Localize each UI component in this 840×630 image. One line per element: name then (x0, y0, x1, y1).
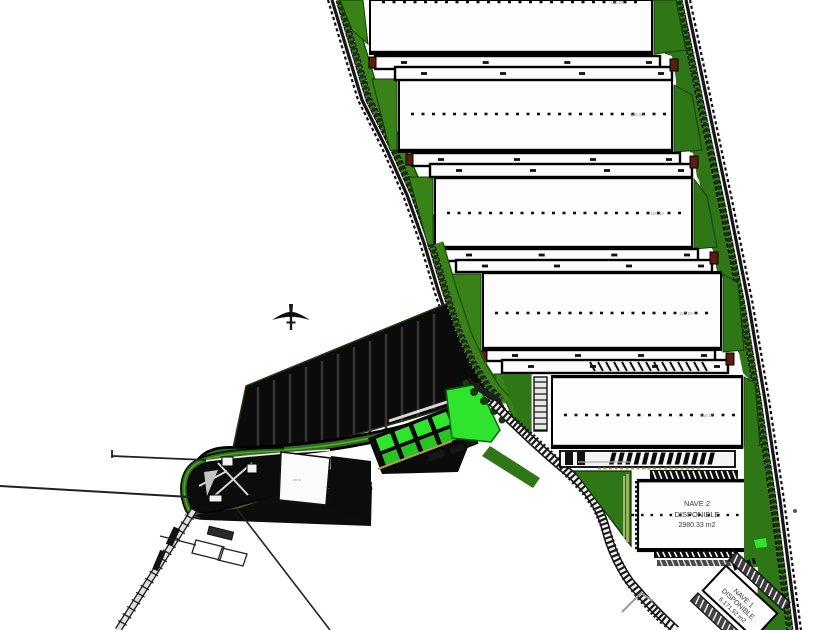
svg-text:NAVE 2: NAVE 2 (684, 499, 710, 508)
svg-text:150.00: 150.00 (630, 112, 644, 117)
svg-text:2980.33 m2: 2980.33 m2 (679, 522, 716, 529)
svg-text:DISPONIBLE: DISPONIBLE (674, 510, 719, 519)
svg-text:150.00: 150.00 (679, 311, 693, 316)
svg-text:obra: obra (293, 477, 302, 482)
svg-text:150.00: 150.00 (650, 211, 664, 216)
svg-text:150.00: 150.00 (700, 413, 714, 418)
svg-text:150.00: 150.00 (610, 0, 624, 5)
